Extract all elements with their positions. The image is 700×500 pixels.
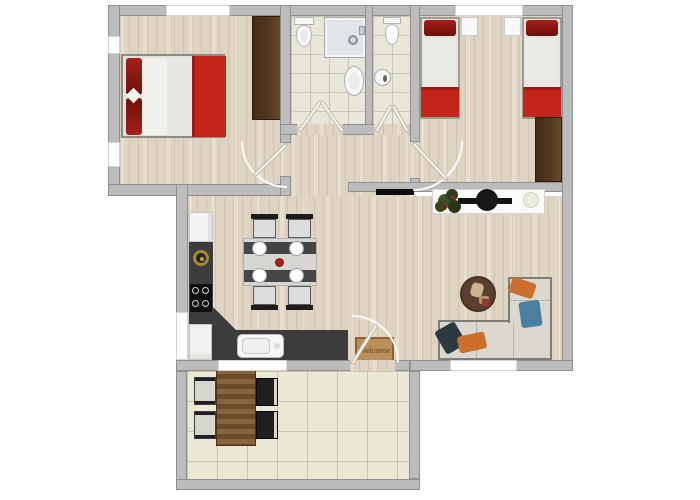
terrace-bottom-wall	[176, 479, 420, 490]
bathroom-divider-wall	[365, 5, 373, 135]
chair-backrest	[251, 305, 278, 310]
dining-table	[243, 238, 317, 286]
dining-chair	[286, 214, 313, 239]
terrace-chair	[256, 411, 278, 439]
basin-bowl	[348, 72, 360, 90]
mattress	[424, 38, 456, 87]
single-bed-right	[522, 17, 562, 119]
bed-blanket	[421, 87, 459, 117]
bedroom-2-left-wall-upper	[410, 5, 420, 142]
bed-pillow	[126, 98, 142, 135]
chair-backrest	[286, 305, 313, 310]
apartment-floor-plan: Welcome	[0, 0, 700, 500]
radiator	[376, 189, 414, 195]
wardrobe-bedroom-2	[535, 117, 562, 182]
toilet	[383, 17, 401, 24]
fridge	[189, 212, 213, 242]
terrace-right-wall	[409, 371, 420, 479]
kitchen-sink	[237, 334, 284, 358]
bedroom-1-bottom-wall	[108, 184, 291, 196]
window	[108, 142, 120, 167]
toilet-seat	[300, 30, 308, 42]
plate	[289, 268, 304, 283]
centerpiece	[275, 258, 284, 267]
burner	[202, 300, 209, 307]
window	[176, 312, 188, 360]
bed-blanket	[192, 56, 226, 137]
basin-drain	[383, 75, 387, 82]
plate	[289, 241, 304, 256]
sink-basin	[242, 338, 270, 354]
dining-chair	[251, 285, 278, 310]
bed-blanket	[523, 87, 561, 117]
terrace-table	[216, 368, 256, 446]
shower	[324, 17, 366, 58]
decor-bowl	[523, 192, 539, 208]
mattress-sheet	[142, 58, 167, 135]
dishwasher	[189, 324, 212, 360]
terrace-left-wall	[176, 371, 187, 490]
sofa-seam	[513, 322, 514, 358]
chair-seat	[253, 286, 276, 305]
chair-seat	[288, 219, 311, 238]
sink-drain	[274, 343, 280, 349]
wardrobe-bedroom-1	[252, 16, 281, 120]
window	[166, 5, 230, 16]
double-bed	[121, 54, 225, 138]
plant-flower	[442, 205, 447, 210]
outer-wall-left-bedroom-1	[108, 5, 120, 196]
burner	[202, 287, 209, 294]
burner	[192, 287, 199, 294]
chair-seat	[288, 286, 311, 305]
window	[218, 360, 287, 371]
coffee-table	[460, 276, 496, 312]
table-decor	[482, 299, 490, 306]
cooktop	[190, 284, 212, 312]
counter-corner	[212, 306, 236, 330]
nightstand	[504, 17, 521, 36]
toilet	[294, 17, 314, 25]
burner	[192, 300, 199, 307]
sink-drain	[200, 257, 204, 261]
nightstand	[461, 17, 478, 36]
dining-chair	[251, 214, 278, 239]
plate	[252, 241, 267, 256]
terrace-chair	[194, 411, 216, 439]
window	[455, 5, 523, 16]
bed-pillow	[424, 20, 456, 36]
round-washbasin	[374, 69, 391, 86]
bedroom-1-right-wall-upper	[280, 5, 291, 143]
single-bed-left	[420, 17, 460, 119]
potted-plant	[433, 187, 463, 217]
mattress	[526, 38, 558, 87]
tv-base	[476, 189, 498, 211]
outer-wall-right	[562, 5, 573, 371]
plate	[252, 268, 267, 283]
chair-seat	[253, 219, 276, 238]
sofa-pillow-blue	[518, 300, 542, 329]
washbasin	[344, 66, 364, 96]
plant-leaf	[448, 200, 461, 213]
terrace-chair	[194, 377, 216, 405]
dining-chair	[286, 285, 313, 310]
bed-pillow	[526, 20, 558, 36]
plant-flower	[451, 195, 455, 199]
terrace-chair	[256, 378, 278, 406]
shower-head	[348, 35, 358, 45]
window	[450, 360, 517, 371]
round-sink	[193, 250, 209, 266]
window	[108, 36, 120, 54]
